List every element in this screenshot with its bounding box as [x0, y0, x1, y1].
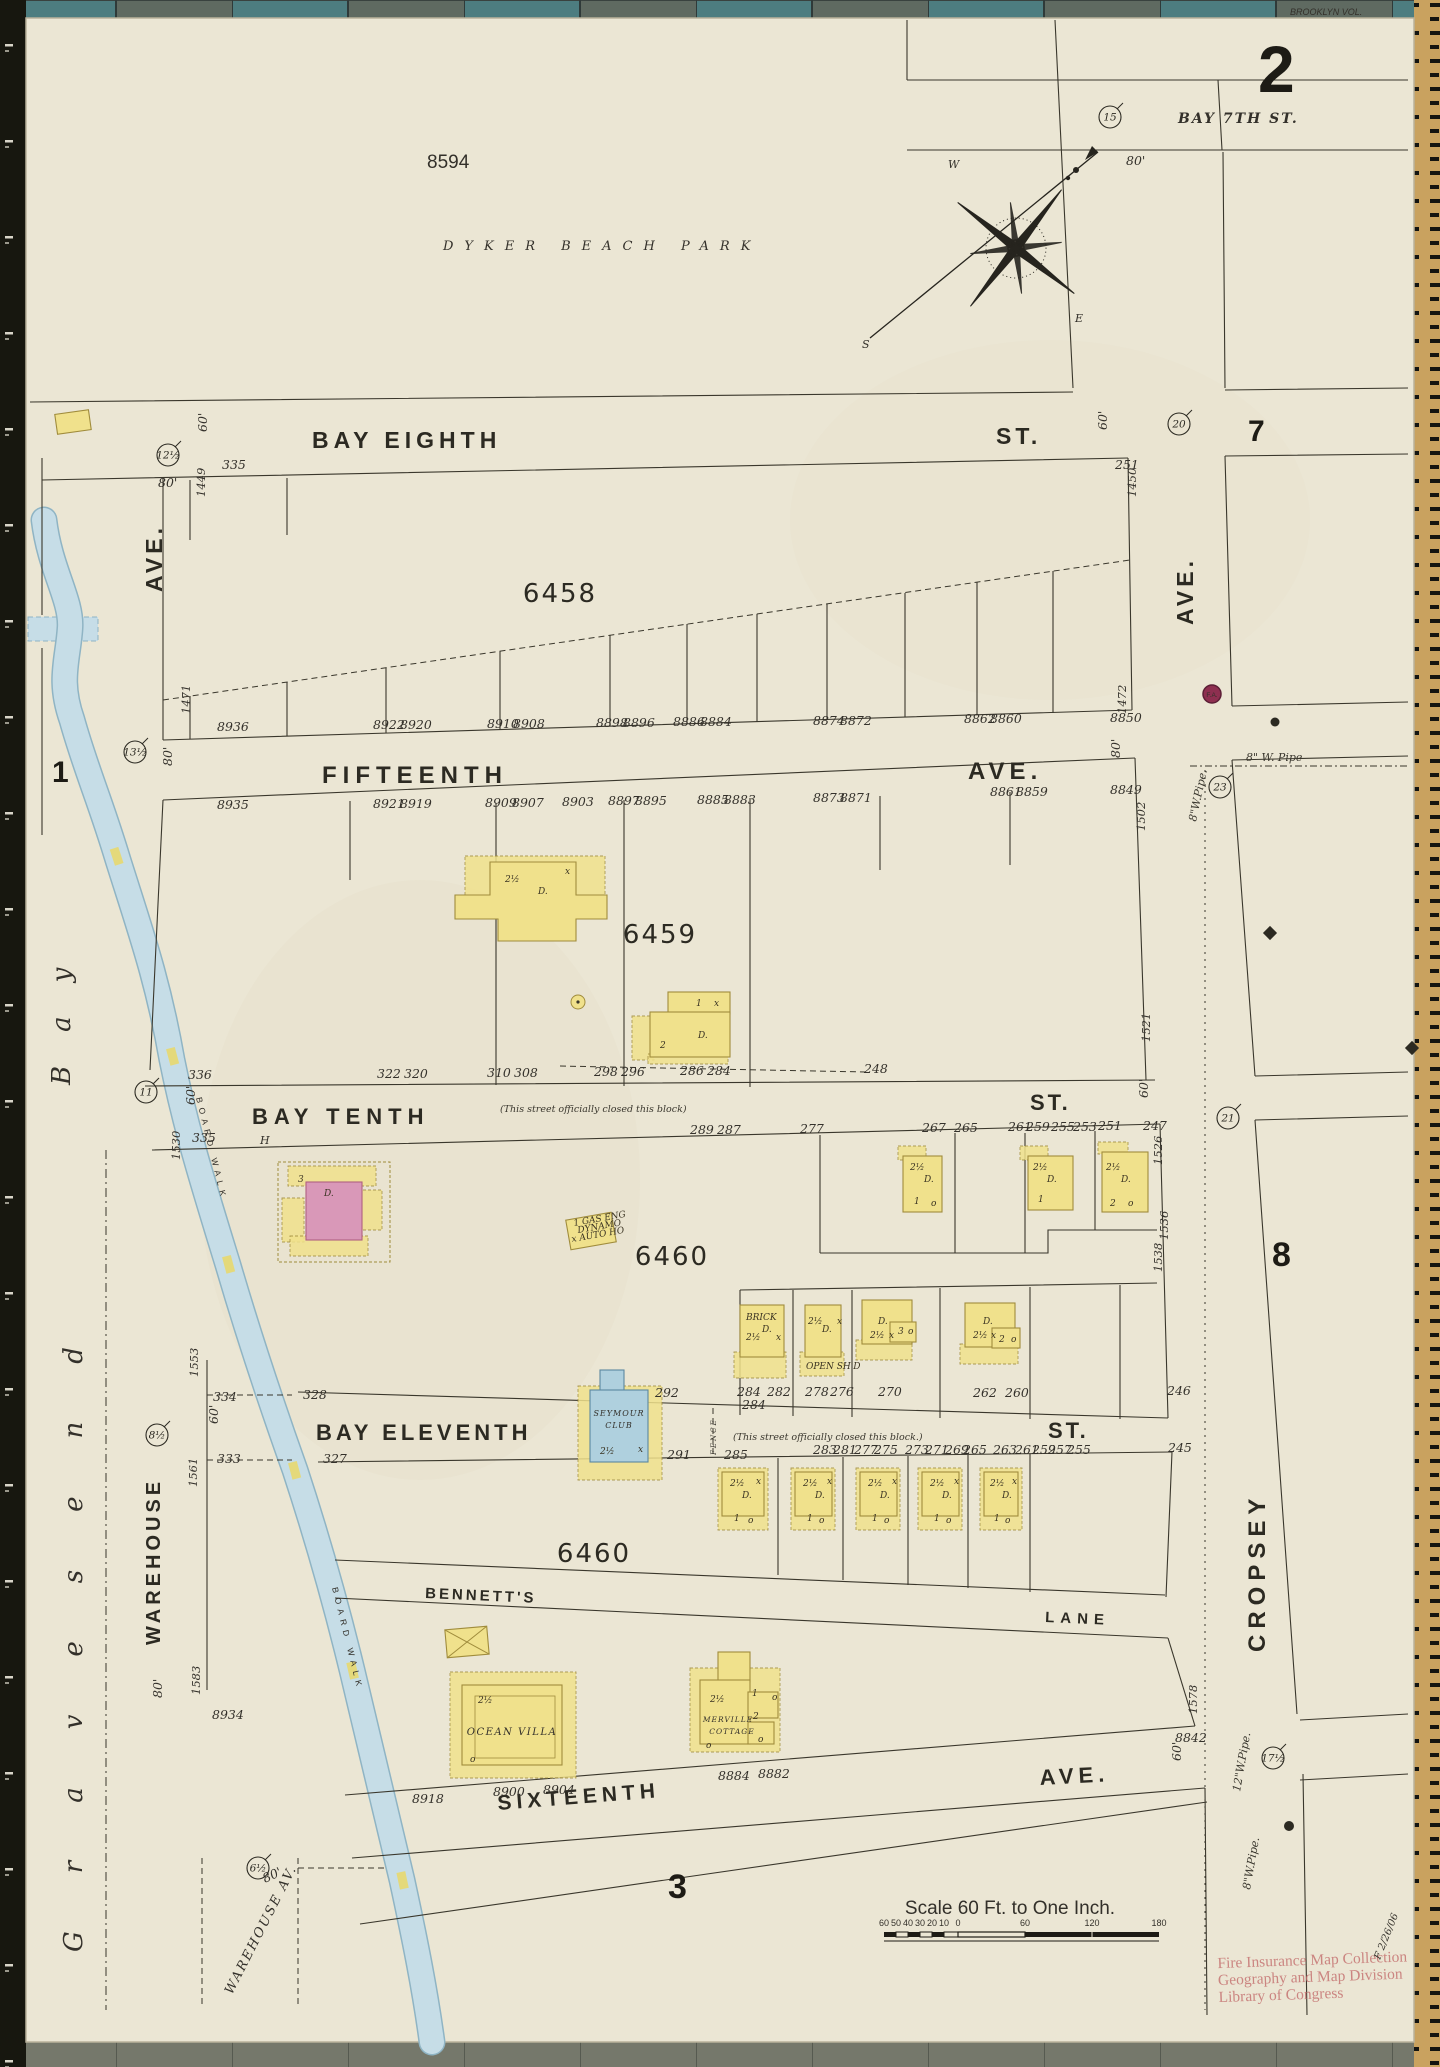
lot-number: 8936	[217, 719, 249, 734]
compass-south-label: S	[862, 338, 870, 351]
building-annotation: 2½	[929, 1478, 944, 1489]
lot-number: 8918	[412, 1791, 444, 1806]
lot-number: 328	[303, 1387, 327, 1402]
lot-number: 8904	[543, 1782, 575, 1797]
street-width-dim: 80'	[160, 747, 175, 766]
street-width-dim: 80'	[1108, 739, 1123, 758]
lot-number: 8884	[718, 1768, 750, 1783]
street-bay-tenth-st: ST.	[1030, 1090, 1071, 1115]
lot-number: 251	[1097, 1118, 1122, 1133]
building-annotation: D.	[741, 1491, 752, 1501]
building-annotation: 1	[994, 1514, 1000, 1524]
street-width-dim: 60'	[183, 1086, 198, 1105]
hydrant-dot-icon	[1284, 1821, 1294, 1831]
lot-number: 285	[723, 1447, 748, 1462]
building-annotation: 2½	[1105, 1162, 1120, 1173]
circled-number-text: 8½	[149, 1430, 166, 1442]
lot-number: 8872	[840, 713, 872, 728]
lot-number: 8883	[724, 792, 756, 807]
map-canvas: F.A. W E S 2	[0, 0, 1440, 2067]
parcel-number: 1536	[1157, 1211, 1171, 1240]
circled-number-text: 11	[139, 1087, 152, 1099]
building-annotation: 1	[807, 1514, 813, 1524]
building-annotation: D.	[537, 887, 548, 897]
street-bay-eighth-st: ST.	[996, 423, 1041, 449]
scale-tick-label: 120	[1084, 1918, 1099, 1928]
lot-number: 335	[222, 457, 246, 472]
building-annotation: o	[946, 1516, 952, 1526]
building-annotation: D.	[877, 1317, 888, 1327]
street-bay-eighth: BAY EIGHTH	[312, 427, 501, 453]
right-ruler	[1414, 0, 1440, 2067]
circled-number-text: 13½	[123, 747, 147, 759]
parcel-number: 1561	[186, 1458, 200, 1487]
lot-number: 292	[654, 1385, 679, 1400]
gravesend-label: Gravesend	[59, 1289, 89, 1952]
building-annotation: D.	[761, 1325, 772, 1335]
lot-number: 310	[487, 1065, 511, 1080]
building-annotation: x	[991, 1331, 996, 1341]
scale-tick-label: 50	[891, 1918, 901, 1928]
street-width-dim: 80'	[1126, 153, 1145, 168]
lot-number: 320	[404, 1066, 428, 1081]
building-annotation: D.	[697, 1031, 708, 1041]
scale-tick-label: 180	[1151, 1918, 1166, 1928]
street-width-dim: 60'	[1095, 411, 1110, 430]
scale-tick-label: 60	[879, 1918, 889, 1928]
building-annotation: 1	[872, 1514, 878, 1524]
lot-number: 246	[1166, 1383, 1191, 1398]
building-annotation: x	[892, 1477, 897, 1487]
building-annotation: D.	[323, 1189, 334, 1199]
parcel-number: 1450	[1125, 468, 1139, 497]
circled-number-text: 17½	[1261, 1753, 1285, 1765]
x-barn	[445, 1626, 489, 1658]
park-lot-number: 8594	[427, 152, 470, 173]
lot-number: 296	[620, 1064, 645, 1079]
adjacent-sheet-7: 7	[1248, 415, 1265, 448]
lot-number: 287	[716, 1122, 741, 1137]
street-bay-tenth: BAY TENTH	[252, 1104, 429, 1129]
building-annotation: 2½	[972, 1330, 987, 1341]
lot-number: 286	[679, 1063, 704, 1078]
lot-number: 245	[1167, 1440, 1192, 1455]
street-fifteenth-ave: AVE.	[968, 758, 1042, 785]
lot-number: 8884	[700, 714, 732, 729]
circled-number-text: 23	[1212, 782, 1227, 794]
building-annotation: 2½	[1032, 1162, 1047, 1173]
building-annotation: 2½	[504, 874, 519, 885]
block-6460-lower: 6460	[557, 1539, 631, 1569]
building-annotation: x	[1012, 1477, 1017, 1487]
scale-tick-label: 20	[927, 1918, 937, 1928]
building-annotation: x	[827, 1477, 832, 1487]
building-annotation: 2½	[599, 1446, 614, 1457]
parcel-number: 1583	[189, 1666, 203, 1695]
building-annotation: D.	[982, 1317, 993, 1327]
building-annotation: o	[706, 1741, 712, 1751]
park-name: DYKER BEACH PARK	[442, 239, 761, 254]
street-bay-eleventh-st: ST.	[1048, 1418, 1089, 1443]
lot-number: 298	[593, 1064, 618, 1079]
lot-number: 8860	[990, 711, 1022, 726]
parcel-number: 1472	[1115, 685, 1129, 714]
scale-tick-label: 60	[1020, 1918, 1030, 1928]
lot-number: 270	[877, 1384, 902, 1399]
sanborn-map-scan: { "sheet": { "number": "2", "adjacent_le…	[0, 0, 1440, 2067]
building-annotation: 2½	[802, 1478, 817, 1489]
h-mark: H	[259, 1134, 270, 1147]
street-warehouse: WAREHOUSE	[143, 1478, 165, 1645]
parcel-number: 1449	[194, 468, 208, 497]
sheet-number: 2	[1258, 32, 1295, 106]
street-width-dim: 80'	[150, 1679, 165, 1698]
mat-top-strip	[0, 0, 1440, 20]
parcel-number: 1521	[1139, 1013, 1153, 1042]
circled-number-text: 12½	[156, 450, 180, 462]
scale-tick-label: 0	[955, 1918, 960, 1928]
street-cropsey: CROPSEY	[1244, 1493, 1271, 1652]
building-annotation: x	[954, 1477, 959, 1487]
building-annotation: o	[1128, 1199, 1134, 1209]
lot-number: 255	[1050, 1119, 1075, 1134]
circled-number-text: 21	[1220, 1113, 1234, 1125]
building-annotation: 1	[696, 999, 702, 1009]
building-annotation: o	[884, 1516, 890, 1526]
lot-number: 260	[1004, 1385, 1029, 1400]
building-annotation: 1	[734, 1514, 740, 1524]
lot-number: 8934	[212, 1707, 244, 1722]
building-annotation: o	[1011, 1335, 1017, 1345]
lot-number: 262	[972, 1385, 997, 1400]
building-annotation: D.	[1120, 1175, 1131, 1185]
parcel-number: 1578	[1186, 1685, 1200, 1714]
parcel-number: 1530	[169, 1131, 183, 1160]
lot-number: 8908	[513, 716, 545, 731]
building-annotation: x	[756, 1477, 761, 1487]
street-sixteenth-ave: AVE.	[1039, 1761, 1110, 1790]
building-annotation: 2½	[477, 1695, 492, 1706]
block-6460-upper: 6460	[635, 1242, 709, 1272]
building-annotation: o	[470, 1755, 476, 1765]
lot-number: 291	[666, 1447, 691, 1462]
building-annotation: D.	[821, 1325, 832, 1335]
block-6458: 6458	[523, 579, 597, 609]
building-annotation: OPEN SH'D	[806, 1362, 860, 1372]
lot-number: 336	[188, 1067, 212, 1082]
compass-north-fleur-icon	[1066, 176, 1070, 180]
building-annotation: o	[908, 1327, 914, 1337]
lot-number: 8871	[840, 790, 872, 805]
lot-number: 333	[217, 1451, 241, 1466]
building-annotation: D.	[1046, 1175, 1057, 1185]
lot-number: 334	[213, 1389, 237, 1404]
lot-number: 8919	[400, 796, 432, 811]
adjacent-sheet-3: 3	[668, 1868, 687, 1906]
building-annotation: 2	[998, 1335, 1005, 1345]
lot-number: 8895	[635, 793, 667, 808]
street-width-dim: 60'	[1136, 1079, 1151, 1098]
seymour-line1: SEYMOUR	[593, 1409, 644, 1418]
lot-number: 8882	[758, 1766, 790, 1781]
lot-number: 335	[192, 1130, 216, 1145]
ocean-villa-label: OCEAN VILLA	[467, 1727, 557, 1738]
street-fifteenth: FIFTEENTH	[322, 762, 508, 789]
fire-alarm-label: F.A.	[1206, 692, 1217, 699]
building-annotation: o	[772, 1693, 778, 1703]
lot-number: 8859	[1016, 784, 1048, 799]
lot-number: 8900	[493, 1784, 525, 1799]
lot-number: 263	[992, 1442, 1017, 1457]
building-annotation: o	[748, 1516, 754, 1526]
building-annotation: D.	[879, 1491, 890, 1501]
lot-number: 8903	[562, 794, 594, 809]
compass-west-label: W	[948, 158, 961, 171]
parcel-number: 1526	[1151, 1136, 1165, 1165]
adjacent-sheet-1: 1	[52, 756, 69, 789]
street-width-dim: 80'	[158, 475, 177, 490]
building-annotation: o	[819, 1516, 825, 1526]
building-annotation: 2	[659, 1041, 666, 1051]
lot-number: 8907	[512, 795, 544, 810]
lot-number: 8849	[1110, 782, 1142, 797]
volume-note: BROOKLYN VOL.	[1290, 7, 1362, 17]
parcel-number: 1538	[1151, 1243, 1165, 1272]
circled-number-text: 6½	[250, 1863, 267, 1875]
building-annotation: BRICK	[745, 1313, 778, 1323]
building-annotation: x	[714, 999, 719, 1009]
circled-number-text: 20	[1171, 419, 1186, 431]
street-width-dim: 60'	[1169, 1742, 1184, 1761]
building-annotation: 2½	[745, 1332, 760, 1343]
lot-number: 267	[921, 1120, 946, 1135]
lot-number: 8935	[217, 797, 249, 812]
lot-number: 265	[953, 1120, 978, 1135]
building-annotation: o	[931, 1199, 937, 1209]
building-annotation: x	[638, 1445, 643, 1455]
lot-number: 8896	[623, 715, 655, 730]
lot-number: 327	[323, 1451, 347, 1466]
building-annotation: 2½	[869, 1330, 884, 1341]
building-annotation: x	[776, 1333, 781, 1343]
small-yellow-structure	[55, 410, 91, 435]
building-annotation: 3	[898, 1327, 904, 1337]
hydrant-dot-icon	[1271, 718, 1280, 727]
lot-number: 284	[706, 1063, 731, 1078]
street-ave-right: AVE.	[1172, 557, 1198, 625]
street-width-dim: 60'	[206, 1405, 221, 1424]
street-ave-left: AVE.	[141, 524, 167, 592]
building-annotation: x	[889, 1331, 894, 1341]
lot-number: 282	[766, 1384, 791, 1399]
building-annotation: 3	[298, 1175, 304, 1185]
compass-east-label: E	[1074, 312, 1083, 325]
building-annotation: D.	[1001, 1491, 1012, 1501]
building-annotation: 2½	[807, 1316, 822, 1327]
lot-number: 278	[804, 1384, 829, 1399]
lot-number: 289	[689, 1122, 714, 1137]
building-annotation: 1	[1038, 1195, 1044, 1205]
building-annotation: 2	[752, 1712, 759, 1722]
building-annotation: x	[837, 1317, 842, 1327]
building-annotation: D.	[814, 1491, 825, 1501]
building-annotation: 2½	[989, 1478, 1004, 1489]
scale-title: Scale 60 Ft. to One Inch.	[905, 1898, 1115, 1919]
lot-number: 248	[863, 1061, 888, 1076]
binding-edge-ruler	[0, 0, 26, 2067]
closed-note-bay-tenth: (This street officially closed this bloc…	[500, 1104, 687, 1115]
seymour-line2: CLUB	[605, 1421, 633, 1430]
building-annotation: 1	[914, 1197, 920, 1207]
compass-north-fleur-icon	[1073, 167, 1079, 173]
building-annotation: o	[1005, 1516, 1011, 1526]
circled-number-text: 15	[1103, 112, 1117, 124]
building-annotation: 2½	[709, 1694, 724, 1705]
building-annotation: o	[758, 1735, 764, 1745]
building-annotation: 2	[1109, 1199, 1116, 1209]
adjacent-sheet-8: 8	[1272, 1236, 1291, 1274]
building-annotation: x	[565, 867, 570, 877]
building-annotation: D.	[941, 1491, 952, 1501]
lot-number: 322	[377, 1066, 401, 1081]
street-bay-eleventh: BAY ELEVENTH	[316, 1420, 532, 1445]
merville-line1: MERVILLE	[702, 1715, 753, 1724]
lot-number: 308	[514, 1065, 538, 1080]
lot-number: 284	[741, 1397, 766, 1412]
fence-label: FENCE	[710, 1418, 718, 1456]
street-bennetts-lane: LANE	[1045, 1609, 1111, 1629]
scale-tick-label: 40	[903, 1918, 913, 1928]
scale-tick-label: 30	[915, 1918, 925, 1928]
bay-label: Bay	[47, 934, 77, 1086]
lot-number: 8920	[400, 717, 432, 732]
lot-number: 253	[1072, 1119, 1097, 1134]
lot-number: 275	[873, 1442, 898, 1457]
well-marker-dot	[576, 1000, 579, 1003]
ocean-villa	[450, 1672, 576, 1778]
lot-number: 276	[829, 1384, 854, 1399]
parcel-number: 1553	[187, 1348, 201, 1377]
building-annotation: 1	[934, 1514, 940, 1524]
building-annotation: D.	[923, 1175, 934, 1185]
street-width-dim: 60'	[195, 413, 210, 432]
street-bay-7th: BAY 7TH ST.	[1177, 111, 1299, 127]
parcel-number: 1502	[1134, 802, 1148, 831]
block-6459: 6459	[623, 920, 697, 950]
building-annotation: 1	[752, 1689, 758, 1699]
parcel-number: 1471	[179, 685, 193, 714]
merville-line2: COTTAGE	[709, 1727, 755, 1736]
lot-number: 277	[799, 1121, 824, 1136]
pipe-8-horizontal-label: 8" W. Pipe	[1246, 751, 1303, 764]
building-annotation: 2½	[729, 1478, 744, 1489]
building-annotation: 2½	[909, 1162, 924, 1173]
lot-number: 247	[1142, 1118, 1167, 1133]
scale-tick-label: 10	[939, 1918, 949, 1928]
lot-number: 265	[962, 1442, 987, 1457]
lot-number: 255	[1066, 1442, 1091, 1457]
building-annotation: 2½	[867, 1478, 882, 1489]
lot-number: 259	[1025, 1119, 1050, 1134]
